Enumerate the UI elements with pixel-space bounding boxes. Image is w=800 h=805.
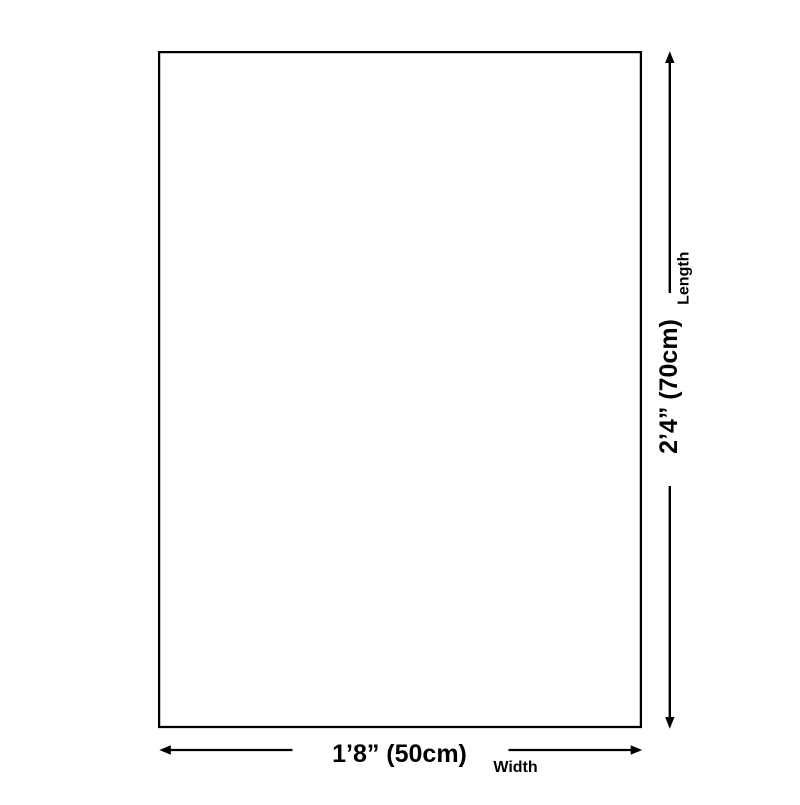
svg-text:Length: Length <box>676 252 693 305</box>
svg-text:1’8” (50cm): 1’8” (50cm) <box>332 740 467 768</box>
svg-text:2’4” (70cm): 2’4” (70cm) <box>655 319 683 454</box>
svg-text:Width: Width <box>493 759 537 776</box>
